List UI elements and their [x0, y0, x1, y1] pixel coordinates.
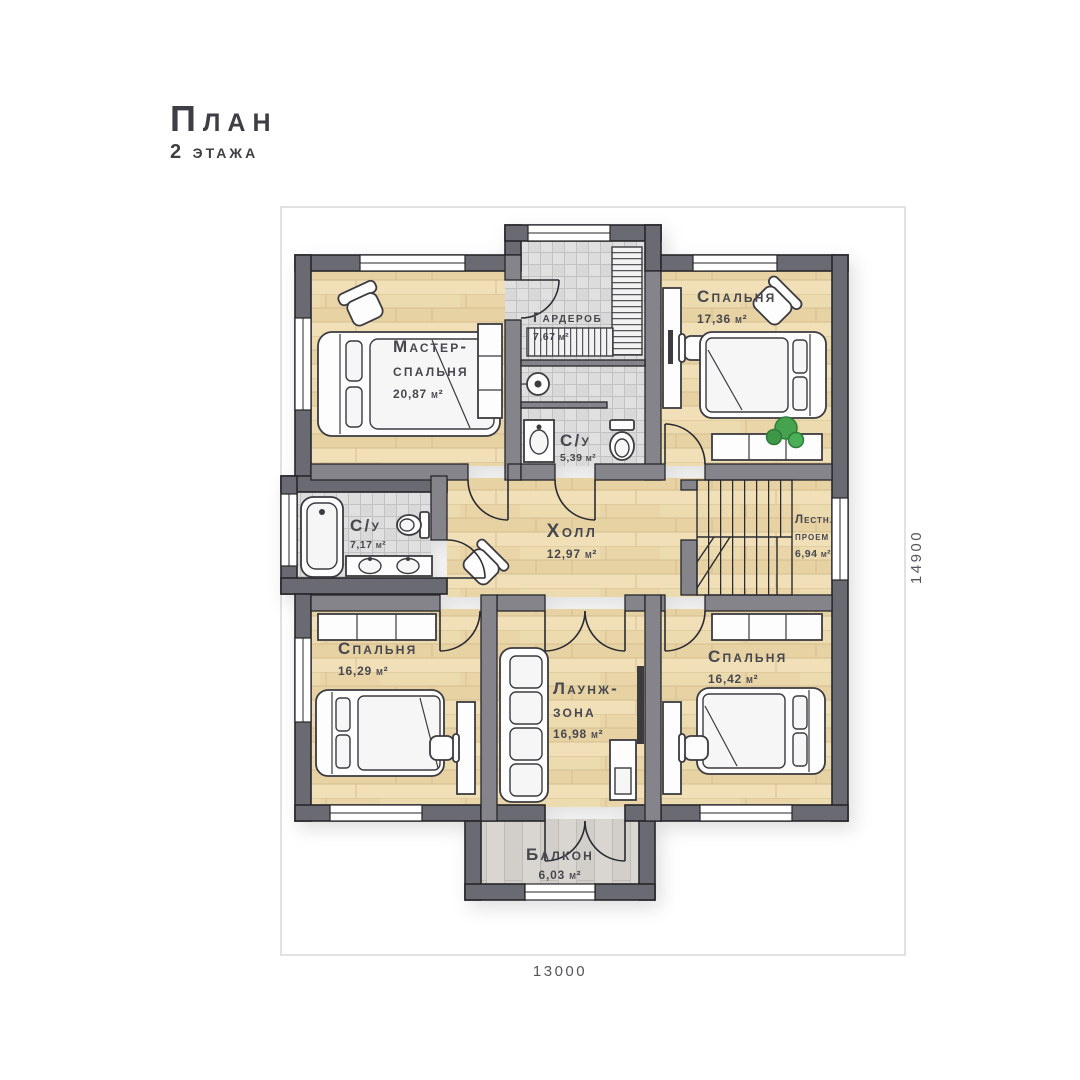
room-area-bedroom-tr: 17,36 м²: [697, 312, 747, 326]
pillow-icon: [346, 387, 362, 427]
toilet-bowl: [615, 439, 629, 457]
window: [295, 638, 311, 722]
room-area-hall: 12,97 м²: [547, 547, 597, 561]
pillow-icon: [346, 341, 362, 381]
svg-text:спальня: спальня: [393, 361, 469, 380]
pillow-icon: [793, 377, 807, 410]
dimension-bottom: 13000: [533, 963, 587, 980]
wall-master-wardrobe-lower: [505, 320, 521, 480]
console-drawer: [615, 768, 631, 794]
room-label-bedroom-bl: Спальня: [338, 639, 417, 658]
wall-shower-divider: [521, 402, 607, 408]
floor-plan-page: План 2 этажа: [0, 0, 1080, 1080]
wall-middle-right: [645, 271, 661, 480]
wall-hall-top-a: [521, 464, 555, 480]
wardrobe-cabinet-icon: [712, 614, 822, 640]
room-label-hall: Холл: [547, 521, 598, 542]
svg-text:проем: проем: [795, 531, 829, 543]
wall-hall-bottom-e: [705, 595, 832, 611]
pillow-icon: [336, 698, 350, 731]
room-area-balcony: 6,03 м²: [539, 868, 582, 882]
stair-treads-upper: [697, 480, 792, 537]
room-label-bedroom-br: Спальня: [708, 647, 787, 666]
room-label-lounge: Лаунж-: [553, 679, 619, 698]
window: [700, 805, 792, 821]
blanket-icon: [703, 694, 785, 768]
balcony-railing: [525, 884, 595, 900]
pillow-icon: [793, 733, 807, 766]
plan-title: План: [170, 100, 278, 138]
room-area-lounge: 16,98 м²: [553, 727, 603, 741]
plan-title-block: План 2 этажа: [170, 100, 278, 164]
faucet-icon: [537, 425, 542, 430]
desk-chair-icon: [430, 734, 459, 762]
wall-bath-bottom: [281, 578, 447, 594]
faucet-icon: [368, 557, 372, 561]
window: [360, 255, 465, 271]
room-label-bedroom-tr: Спальня: [697, 287, 776, 306]
window: [693, 255, 777, 271]
monitor-icon: [668, 330, 673, 364]
pillow-icon: [793, 696, 807, 729]
room-label-wardrobe: Гардероб: [533, 309, 602, 325]
building: Мастер- спальня 20,87 м² Гардероб 7,67 м…: [281, 225, 848, 900]
blanket-icon: [706, 338, 788, 412]
wall-lounge-bedroom-right: [645, 595, 661, 821]
wall-master-bottom-b: [508, 464, 521, 480]
room-area-master: 20,87 м²: [393, 387, 443, 401]
dimension-right: 14900: [908, 530, 925, 584]
wall-balcony-bottom-right: [595, 884, 655, 900]
blanket-icon: [358, 696, 440, 770]
wall-master-wardrobe-upper: [505, 255, 521, 280]
wardrobe-cabinet-icon: [478, 324, 502, 418]
tv-icon: [637, 666, 644, 744]
stair-treads-lower: [697, 537, 777, 595]
room-label-balcony: Балкон: [526, 845, 594, 864]
sofa-cushion: [510, 692, 542, 724]
room-area-bath-large: 7,17 м²: [350, 539, 386, 551]
wall-stair-left-b: [681, 540, 697, 595]
pillow-icon: [336, 735, 350, 768]
room-label-stairwell: Лестн.: [795, 514, 834, 526]
room-area-bedroom-bl: 16,29 м²: [338, 664, 388, 678]
room-label-bath-small: С/у: [560, 431, 591, 450]
wall-hall-top-c: [705, 464, 832, 480]
faucet-icon: [406, 557, 410, 561]
wall-hall-top-b: [595, 464, 665, 480]
window: [832, 498, 848, 580]
sofa-cushion: [510, 728, 542, 760]
wardrobe-cabinet-icon: [318, 614, 436, 640]
room-area-bedroom-br: 16,42 м²: [708, 672, 758, 686]
wall-hall-bottom-c: [625, 595, 645, 611]
room-label-bath-large: С/у: [350, 516, 381, 535]
svg-text:зона: зона: [553, 702, 596, 721]
wall-wardrobe-divider: [521, 360, 645, 366]
sofa-cushion: [510, 656, 542, 688]
window: [330, 805, 422, 821]
room-area-wardrobe: 7,67 м²: [533, 331, 569, 343]
sofa-cushion: [510, 764, 542, 796]
window: [281, 494, 297, 566]
room-area-stairwell: 6,94 м²: [795, 548, 831, 560]
closet-rack-icon: [612, 247, 642, 355]
wall-bath-right: [431, 476, 447, 540]
floor-plan-svg: Мастер- спальня 20,87 м² Гардероб 7,67 м…: [0, 0, 1080, 1080]
window: [295, 318, 311, 410]
room-area-bath-small: 5,39 м²: [560, 452, 596, 464]
sink-icon: [530, 430, 548, 454]
wall-stair-left-a: [681, 480, 697, 490]
wall-balcony-bottom-left: [465, 884, 525, 900]
wall-wardrobe-step-right: [645, 225, 661, 271]
wall-hall-bottom-b: [497, 595, 545, 611]
window: [528, 225, 610, 241]
plan-subtitle: 2 этажа: [170, 141, 278, 164]
wall-hall-bottom-a: [311, 595, 440, 611]
room-label-master: Мастер-: [393, 337, 468, 356]
toilet-bowl: [400, 519, 414, 531]
bathtub-drain: [319, 509, 325, 515]
toilet-tank: [610, 420, 634, 430]
pillow-icon: [793, 340, 807, 373]
desk-chair-icon: [679, 734, 708, 762]
wall-bedroom-lounge-left: [481, 595, 497, 821]
shower-head: [535, 381, 542, 388]
